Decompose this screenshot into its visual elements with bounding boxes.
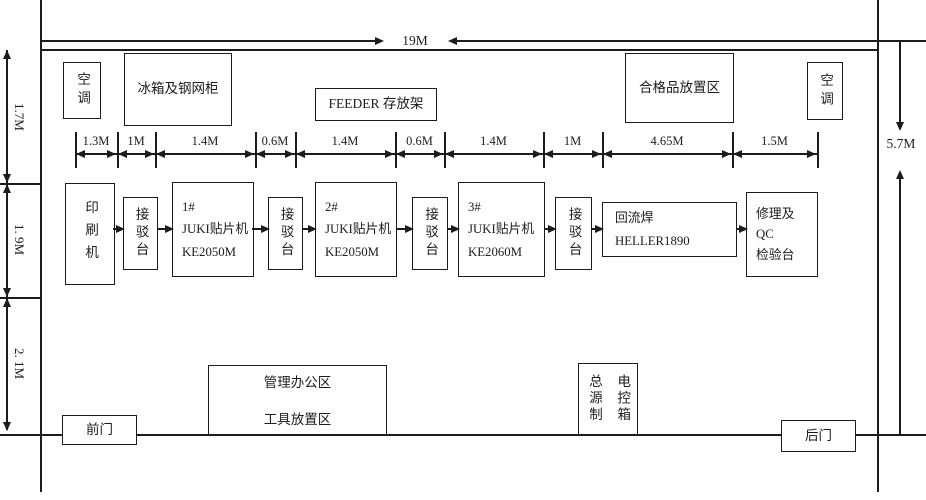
- dim-segment: 1.5M: [732, 132, 817, 170]
- left-dim-label: 1. 9M: [11, 208, 27, 272]
- dim-arrow-left-icon: [733, 150, 742, 158]
- dim-tick: [817, 132, 819, 168]
- power-box-col1: 总源制: [585, 374, 603, 424]
- left-dim-line: [6, 50, 8, 430]
- dim-segment: 1.4M: [295, 132, 395, 170]
- qualified-products-area-label: 合格品放置区: [639, 79, 720, 97]
- feeder-rack-label: FEEDER 存放架: [329, 95, 424, 113]
- dim-arrow-down-icon: [896, 122, 904, 131]
- dim-arrow-right-icon: [807, 150, 816, 158]
- dim-arrow-right-icon: [592, 150, 601, 158]
- conveyor-1-label: 接驳台: [131, 207, 149, 260]
- conveyor-4-box: 接驳台: [555, 197, 592, 270]
- juki-3-box: 3# JUKI贴片机 KE2060M: [458, 182, 545, 277]
- dim-arrow-right-icon: [385, 150, 394, 158]
- front-door-label: 前门: [86, 421, 113, 439]
- dim-segment: 1M: [117, 132, 155, 170]
- left-dim-label: 1.7M: [11, 85, 27, 149]
- dim-segment-label: 1.4M: [295, 134, 395, 149]
- flow-arrow-icon: [544, 224, 556, 234]
- dim-arrow-down-icon: [3, 174, 11, 183]
- dim-segment-label: 4.65M: [602, 134, 732, 149]
- front-door-box: 前门: [62, 415, 137, 445]
- reflow-oven-name: 回流焊: [615, 207, 653, 229]
- dim-segment-label: 0.6M: [395, 134, 444, 149]
- back-door-box: 后门: [781, 420, 856, 452]
- dim-segment: 0.6M: [395, 132, 444, 170]
- dim-arrow-up-icon: [3, 184, 11, 193]
- dim-arrow-up-icon: [3, 298, 11, 307]
- dim-arrow-up-icon: [3, 50, 11, 59]
- left-dim-label: 2. 1M: [11, 332, 27, 396]
- juki-1-box: 1# JUKI贴片机 KE2050M: [172, 182, 254, 277]
- qualified-products-area-box: 合格品放置区: [625, 53, 734, 123]
- conveyor-1-box: 接驳台: [123, 197, 158, 270]
- dim-segment-line: [444, 153, 543, 155]
- dim-segment-line: [295, 153, 395, 155]
- dim-arrow-left-icon: [76, 150, 85, 158]
- dim-segment: 1.4M: [155, 132, 255, 170]
- repair-qc-line2: QC: [756, 224, 774, 244]
- left-wall-line: [40, 0, 42, 492]
- flow-arrowhead-icon: [451, 225, 460, 233]
- dim-arrow-left-icon: [396, 150, 405, 158]
- top-wall-line: [40, 49, 878, 51]
- flow-arrow-icon: [736, 224, 747, 234]
- dim-arrow-right-icon: [375, 37, 384, 45]
- dim-segment: 1M: [543, 132, 602, 170]
- dim-arrow-left-icon: [544, 150, 553, 158]
- dim-arrow-left-icon: [296, 150, 305, 158]
- juki-2-name: JUKI贴片机: [325, 218, 391, 240]
- dim-arrow-down-icon: [3, 422, 11, 431]
- flow-arrow-icon: [252, 224, 269, 234]
- juki-3-name: JUKI贴片机: [468, 218, 534, 240]
- flow-arrowhead-icon: [548, 225, 557, 233]
- fridge-stencil-cabinet-label: 冰箱及钢网柜: [138, 80, 219, 98]
- conveyor-3-box: 接驳台: [412, 197, 448, 270]
- dim-segment-line: [155, 153, 255, 155]
- air-conditioner-right-label: 空调: [816, 73, 834, 110]
- flow-arrowhead-icon: [165, 225, 174, 233]
- repair-qc-line3: 检验台: [756, 245, 794, 265]
- conveyor-2-box: 接驳台: [268, 197, 303, 270]
- fridge-stencil-cabinet-box: 冰箱及钢网柜: [124, 53, 232, 126]
- dim-5-7m-label: 5.7M: [880, 136, 922, 152]
- office-area-label: 管理办公区: [264, 374, 332, 392]
- juki-1-no: 1#: [182, 196, 195, 218]
- dim-19m-label: 19M: [386, 33, 444, 49]
- air-conditioner-left-box: 空调: [63, 62, 101, 119]
- dim-arrow-left-icon: [603, 150, 612, 158]
- back-door-label: 后门: [805, 427, 832, 445]
- flow-arrow-icon: [113, 224, 124, 234]
- main-power-control-box: 总源制 电控箱: [578, 363, 638, 435]
- reflow-oven-model: HELLER1890: [615, 230, 690, 252]
- flow-arrow-icon: [396, 224, 413, 234]
- dim-arrow-left-icon: [256, 150, 265, 158]
- air-conditioner-left-label: 空调: [73, 72, 91, 109]
- flow-arrow-icon: [302, 224, 316, 234]
- flow-arrowhead-icon: [595, 225, 604, 233]
- dim-arrow-left-icon: [118, 150, 127, 158]
- floor-plan-diagram: 19M 5.7M 1.7M1. 9M2. 1M 1.3M 1M: [0, 0, 926, 500]
- dim-arrow-right-icon: [107, 150, 116, 158]
- dim-segment-label: 1.4M: [155, 134, 255, 149]
- flow-arrow-icon: [591, 224, 603, 234]
- dim-segment: 4.65M: [602, 132, 732, 170]
- dim-arrow-down-icon: [3, 288, 11, 297]
- office-tools-area-box: 管理办公区 工具放置区: [208, 365, 387, 435]
- dim-19m-line-left: [40, 40, 380, 42]
- dim-19m-line-right: [455, 40, 926, 42]
- flow-arrowhead-icon: [739, 225, 748, 233]
- repair-qc-box: 修理及 QC 检验台: [746, 192, 818, 277]
- printer-label: 印刷机: [81, 200, 99, 268]
- dim-segment-label: 1.3M: [75, 134, 117, 149]
- power-box-col2: 电控箱: [613, 374, 631, 424]
- dim-segment: 1.3M: [75, 132, 117, 170]
- dim-arrow-right-icon: [145, 150, 154, 158]
- dim-segment: 0.6M: [255, 132, 295, 170]
- dim-arrow-right-icon: [285, 150, 294, 158]
- juki-2-box: 2# JUKI贴片机 KE2050M: [315, 182, 397, 277]
- dim-segment-label: 1M: [543, 134, 602, 149]
- dim-segment: 1.4M: [444, 132, 543, 170]
- conveyor-3-label: 接驳台: [421, 207, 439, 260]
- flow-arrowhead-icon: [261, 225, 270, 233]
- dim-arrow-right-icon: [434, 150, 443, 158]
- dim-segment-label: 1.5M: [732, 134, 817, 149]
- juki-3-no: 3#: [468, 196, 481, 218]
- conveyor-2-label: 接驳台: [276, 207, 294, 260]
- juki-2-model: KE2050M: [325, 241, 379, 263]
- juki-1-model: KE2050M: [182, 241, 236, 263]
- printer-box: 印刷机: [65, 183, 115, 285]
- flow-arrow-icon: [157, 224, 173, 234]
- feeder-rack-box: FEEDER 存放架: [315, 88, 437, 121]
- dim-5-7m-line-top: [899, 41, 901, 123]
- dim-segment-label: 0.6M: [255, 134, 295, 149]
- right-wall-line: [877, 0, 879, 492]
- juki-2-no: 2#: [325, 196, 338, 218]
- dim-arrow-left-icon: [445, 150, 454, 158]
- dim-segment-label: 1M: [117, 134, 155, 149]
- juki-3-model: KE2060M: [468, 241, 522, 263]
- flow-arrowhead-icon: [116, 225, 125, 233]
- conveyor-4-label: 接驳台: [564, 207, 582, 260]
- reflow-oven-box: 回流焊 HELLER1890: [602, 202, 737, 257]
- flow-arrow-icon: [447, 224, 459, 234]
- dim-arrow-right-icon: [533, 150, 542, 158]
- dim-5-7m-line-bottom: [899, 178, 901, 435]
- tools-area-label: 工具放置区: [264, 411, 332, 429]
- air-conditioner-right-box: 空调: [807, 62, 843, 120]
- flow-arrowhead-icon: [405, 225, 414, 233]
- repair-qc-line1: 修理及: [756, 204, 794, 224]
- dim-arrow-right-icon: [722, 150, 731, 158]
- dim-arrow-right-icon: [245, 150, 254, 158]
- juki-1-name: JUKI贴片机: [182, 218, 248, 240]
- dim-segment-label: 1.4M: [444, 134, 543, 149]
- dim-arrow-left-icon: [156, 150, 165, 158]
- dim-segment-line: [732, 153, 817, 155]
- flow-arrowhead-icon: [308, 225, 317, 233]
- dim-segment-line: [602, 153, 732, 155]
